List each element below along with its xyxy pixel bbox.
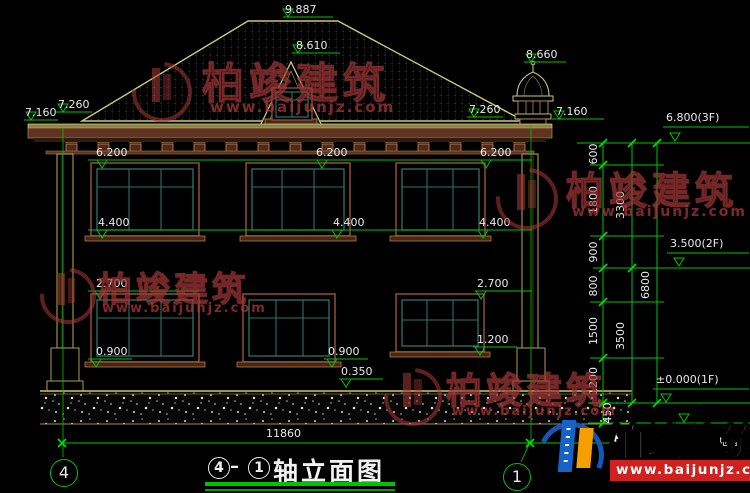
dim-eave-left-inner: 7.260 — [58, 99, 90, 111]
dim-2f-sill-center: 4.400 — [333, 217, 365, 229]
dim-1f-sill-left: 0.900 — [96, 346, 128, 358]
level-3f: 6.800(3F) — [666, 112, 719, 124]
right-pilaster — [522, 154, 538, 348]
first-floor-windows — [85, 294, 490, 367]
dim-ridge: 9.887 — [285, 4, 317, 16]
cad-elevation-screenshot: 9.887 8.610 8.660 7.160 7.260 7.260 7.16… — [0, 0, 750, 493]
dim-2f-sill-left: 4.400 — [98, 217, 130, 229]
dim-chimney: 8.660 — [526, 49, 558, 61]
dim-2f-sill-right: 4.400 — [479, 217, 511, 229]
second-floor-windows — [85, 163, 491, 241]
title-underline-thin — [205, 489, 395, 491]
chimney-turret — [513, 61, 553, 127]
title-underline-thick — [205, 482, 395, 486]
company-logo: 柏竣建筑 www.baijunjz.com — [538, 412, 750, 492]
logo-company-name: 柏竣建筑 — [608, 412, 750, 467]
dim-eave-right-inner: 7.260 — [469, 104, 501, 116]
dim-1f-sill-center: 0.900 — [328, 346, 360, 358]
dim-2f-head-center: 6.200 — [316, 147, 348, 159]
chain-1200: 1200 — [588, 358, 600, 404]
dim-eave-left-outer: 7.160 — [25, 107, 57, 119]
window-2f-center — [240, 163, 356, 241]
axis-bubble-4: 4 — [50, 459, 78, 487]
dim-eave-right-outer: 7.160 — [556, 106, 588, 118]
level-2f: 3.500(2F) — [670, 238, 723, 250]
chain-1500: 1500 — [588, 308, 600, 354]
title-separator: – — [230, 456, 239, 477]
left-plinth — [51, 348, 79, 381]
title-axis-start: 4 — [208, 457, 230, 479]
chain-3300: 3300 — [615, 182, 627, 228]
chain-6800: 6800 — [640, 262, 652, 308]
dim-1f-sill-right: 1.200 — [477, 334, 509, 346]
chain-1800: 1800 — [588, 177, 600, 223]
dim-1f-head-right: 2.700 — [477, 278, 509, 290]
logo-website: www.baijunjz.com — [610, 460, 750, 481]
dim-dormer: 8.610 — [296, 40, 328, 52]
title-axis-end: 1 — [248, 457, 270, 479]
dim-overall-width: 11860 — [266, 428, 301, 440]
chain-3500: 3500 — [615, 313, 627, 359]
window-2f-right — [390, 163, 491, 241]
dim-2f-head-right: 6.200 — [480, 147, 512, 159]
chain-600: 600 — [588, 131, 600, 177]
window-2f-left — [85, 163, 205, 241]
left-pilaster — [57, 154, 73, 348]
level-1f: ±0.000(1F) — [656, 374, 719, 386]
dim-2f-head-left: 6.200 — [96, 147, 128, 159]
axis-bubble-1: 1 — [503, 463, 531, 491]
window-1f-center — [237, 294, 341, 367]
chain-800: 800 — [588, 263, 600, 309]
dim-plinth: 0.350 — [341, 366, 373, 378]
dim-1f-head-left: 2.700 — [96, 278, 128, 290]
